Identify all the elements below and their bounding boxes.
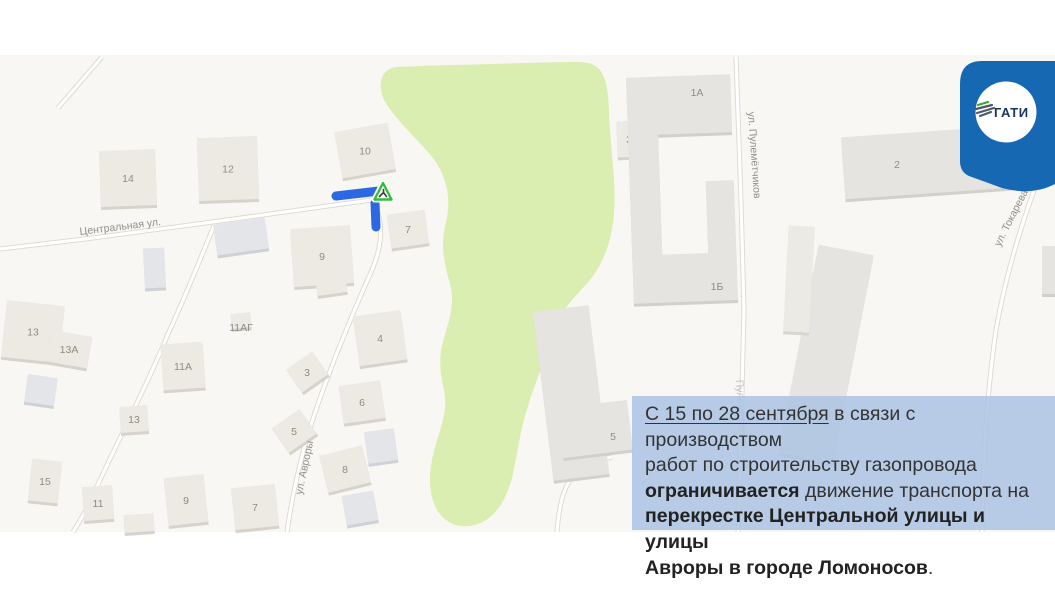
gati-logo-badge: ГАТИ [0,0,1055,594]
gati-logo-text: ГАТИ [994,105,1029,120]
